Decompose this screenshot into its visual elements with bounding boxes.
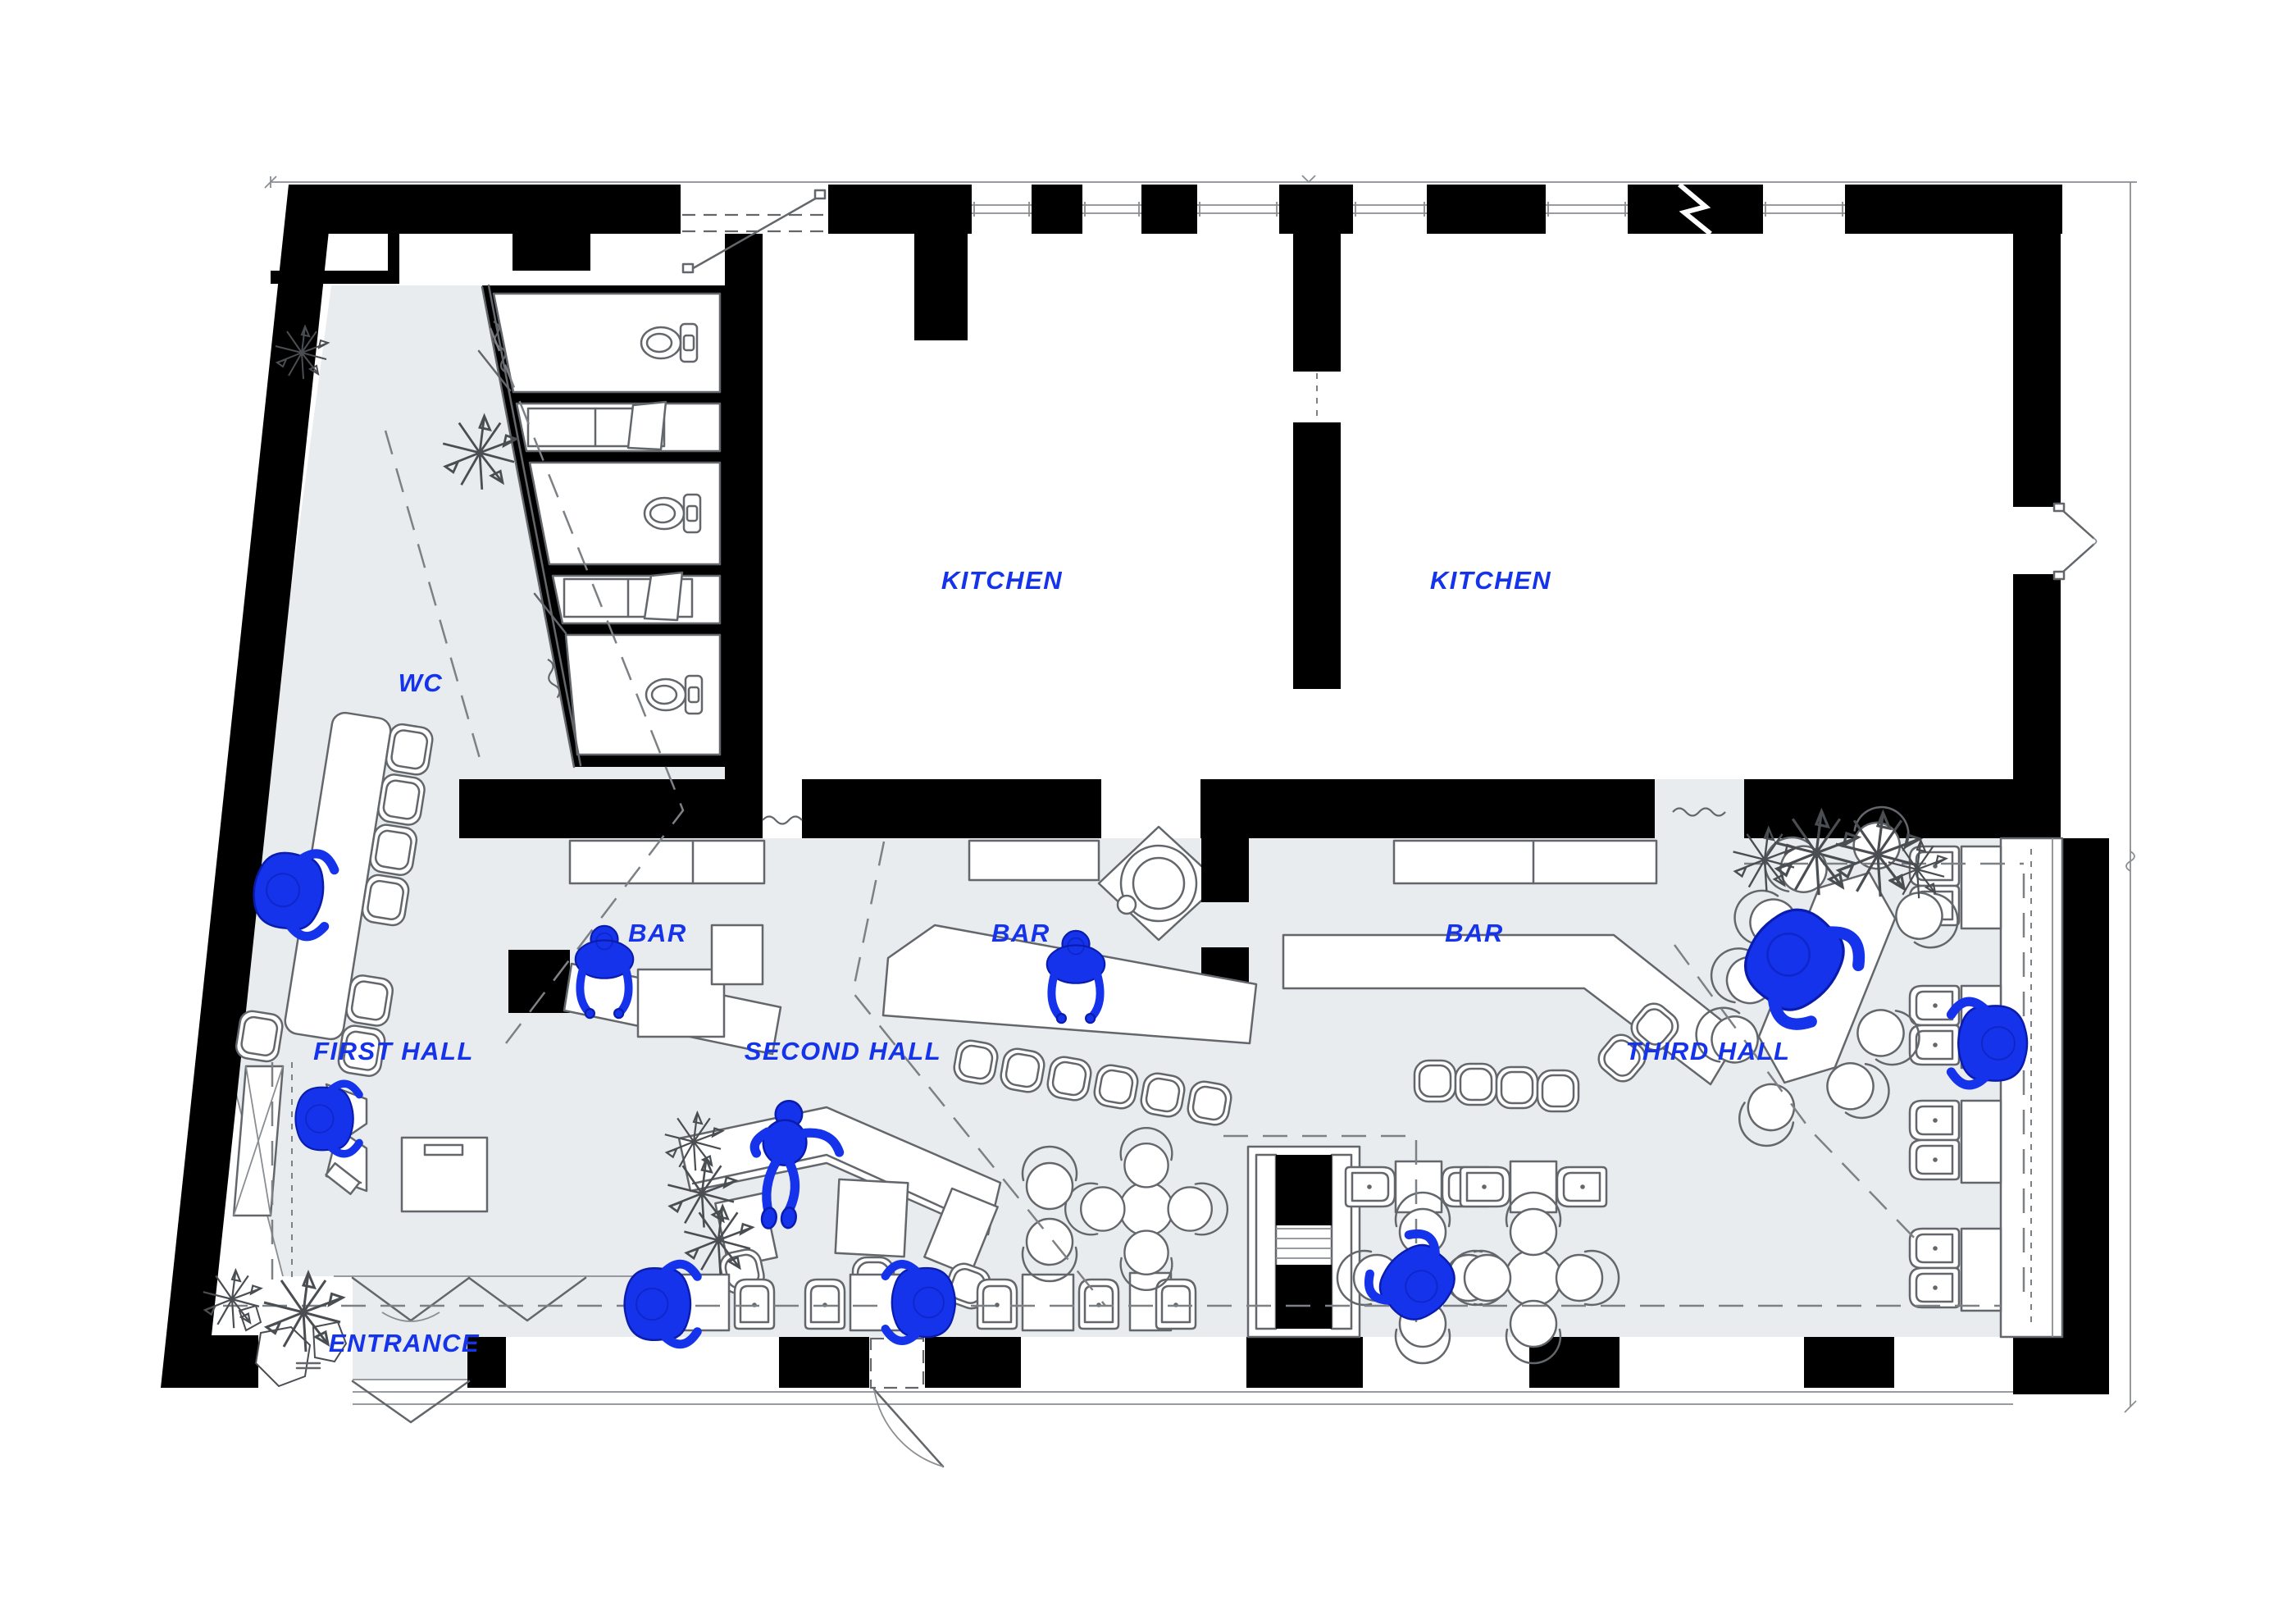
kitchen-double-door: [2054, 504, 2097, 579]
label-kitchen-1: KITCHEN: [941, 566, 1063, 595]
label-third-hall: THIRD HALL: [1626, 1037, 1791, 1065]
kitchen-bottom-wall: [459, 779, 763, 838]
wc-niche-wall2: [388, 234, 399, 271]
bottom-pier: [1246, 1337, 1363, 1388]
label-bar-2: BAR: [991, 919, 1050, 947]
floor-plan-canvas: WC KITCHEN KITCHEN BAR BAR BAR FIRST HAL…: [0, 0, 2296, 1624]
right-wall-mid: [2013, 574, 2061, 779]
window: [1353, 202, 1427, 217]
top-wall-seg: [1427, 185, 1546, 234]
toilet: [646, 676, 702, 714]
booth: [1910, 1229, 2001, 1311]
label-bar-3: BAR: [1445, 919, 1504, 947]
toilet: [641, 324, 697, 362]
booth: [1910, 1101, 2001, 1183]
staircase: [1248, 1147, 1360, 1337]
top-wall-seg: [289, 185, 681, 234]
kitchen-divider-upper: [1293, 234, 1341, 372]
wc-kitchen-wall: [725, 234, 763, 779]
label-kitchen-2: KITCHEN: [1430, 566, 1551, 595]
label-first-hall: FIRST HALL: [313, 1037, 474, 1065]
kitchen-bottom-wall: [1744, 779, 2061, 838]
kitchen-pier: [914, 234, 968, 340]
label-wc: WC: [399, 668, 444, 697]
top-openings: [682, 190, 2097, 579]
kitchen-bottom-wall: [802, 779, 1101, 838]
window: [972, 202, 1032, 217]
top-wall-seg: [1845, 185, 2062, 234]
toilet: [645, 495, 700, 532]
right-wall-thirdhall: [2062, 838, 2109, 1337]
top-wall-pier: [512, 234, 590, 271]
kitchen-bottom-wall: [1200, 779, 1655, 838]
bottom-pier: [1804, 1337, 1894, 1388]
window: [1082, 202, 1141, 217]
wc-niche-wall: [271, 271, 399, 284]
corner-bottom-right: [2013, 1337, 2109, 1394]
table-pairs: [1346, 1161, 1606, 1212]
wall-break-wave: [763, 817, 802, 824]
right-wall-upper: [2013, 234, 2061, 507]
bottom-pier: [925, 1337, 1021, 1388]
bench-table: [402, 1138, 487, 1211]
sink-counter: [528, 402, 666, 449]
window: [1763, 202, 1845, 217]
bottom-pier: [779, 1337, 869, 1388]
label-second-hall: SECOND HALL: [745, 1037, 941, 1065]
window: [1546, 202, 1628, 217]
top-wall-seg: [828, 185, 972, 234]
kitchen-divider-lower: [1293, 422, 1341, 689]
label-bar-1: BAR: [628, 919, 687, 947]
top-wall-seg: [1032, 185, 1082, 234]
sink-counter: [564, 573, 692, 620]
window: [1197, 202, 1279, 217]
label-entrance: ENTRANCE: [329, 1329, 480, 1357]
top-wall-seg: [1141, 185, 1197, 234]
top-wall-seg: [1279, 185, 1353, 234]
corridor-gap-floor: [1655, 779, 1744, 838]
